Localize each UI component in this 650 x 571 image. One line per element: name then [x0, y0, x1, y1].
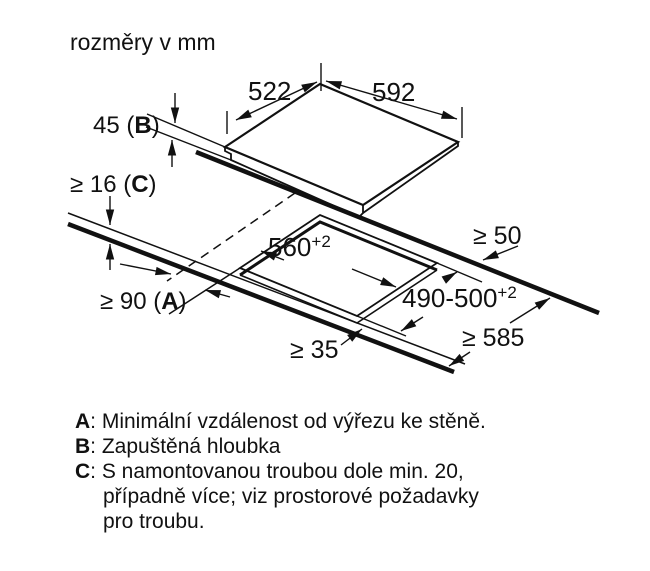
dimension-50: ≥ 50 — [473, 222, 521, 260]
dim-560-label: 560+2 — [268, 232, 331, 262]
dim-90-a-label: ≥ 90 (A) — [100, 288, 187, 315]
arrow-down-right — [352, 269, 396, 287]
legend-item-c-cont1: případně více; viz prostorové požadavky — [75, 484, 615, 509]
cooktop-left-rim — [225, 147, 363, 217]
installation-diagram-page: rozměry v mm 5 — [0, 0, 650, 571]
dimension-522: 522 — [227, 63, 321, 134]
arrow-up-right — [444, 272, 457, 280]
dim-50-label: ≥ 50 — [473, 222, 521, 250]
arrow-down-left — [401, 317, 423, 331]
legend-item-a: A: Minimální vzdálenost od výřezu ke stě… — [75, 409, 615, 434]
legend-item-c-cont2: pro troubu. — [75, 509, 615, 534]
dim-35-label: ≥ 35 — [290, 336, 338, 364]
dim-490-500-label: 490-500+2 — [402, 283, 517, 313]
legend-text: : Zapuštěná hloubka — [90, 435, 280, 458]
dim-16-c-label: ≥ 16 (C) — [70, 171, 157, 198]
dimension-90-a: ≥ 90 (A) — [100, 193, 295, 315]
dimension-560: 560+2 — [261, 232, 396, 287]
dim-45-b-label: 45 (B) — [93, 112, 160, 139]
dim-585-label: ≥ 585 — [462, 324, 524, 352]
legend-text: případně více; viz prostorové požadavky — [103, 485, 479, 508]
arrow-right — [120, 264, 171, 274]
legend-letter: B — [75, 435, 90, 458]
legend-item-b: B: Zapuštěná hloubka — [75, 434, 615, 459]
legend-letter: C — [75, 460, 90, 483]
legend-text: : Minimální vzdálenost od výřezu ke stěn… — [90, 410, 486, 433]
arrow-left — [205, 290, 230, 297]
legend-text: pro troubu. — [103, 510, 205, 533]
legend-letter: A — [75, 410, 90, 433]
dimension-592: 592 — [326, 77, 462, 138]
legend-text: : S namontovanou troubou dole min. 20, — [90, 460, 464, 483]
legend: A: Minimální vzdálenost od výřezu ke stě… — [75, 409, 615, 534]
dim-592-label: 592 — [372, 77, 415, 107]
dim-522-label: 522 — [248, 76, 291, 106]
legend-item-c: C: S namontovanou troubou dole min. 20, — [75, 459, 615, 484]
